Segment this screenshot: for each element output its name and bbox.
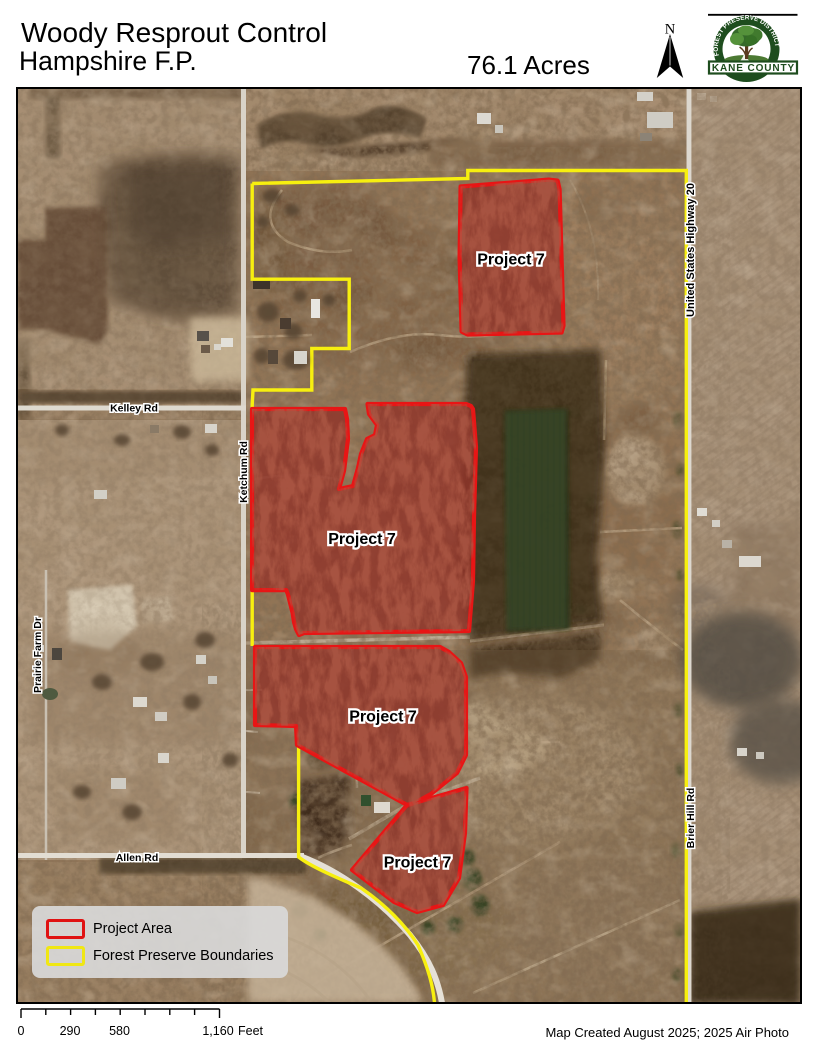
svg-text:Kelley Rd: Kelley Rd — [110, 403, 158, 415]
svg-text:580: 580 — [109, 1024, 130, 1038]
svg-text:0: 0 — [18, 1024, 25, 1038]
svg-text:Brier Hill Rd: Brier Hill Rd — [685, 788, 697, 849]
svg-text:Project 7: Project 7 — [349, 709, 417, 726]
svg-text:1,160: 1,160 — [202, 1024, 233, 1038]
svg-text:Prairie Farm Dr: Prairie Farm Dr — [32, 617, 44, 693]
svg-text:Allen Rd: Allen Rd — [116, 852, 159, 864]
svg-text:290: 290 — [60, 1024, 81, 1038]
svg-text:United States Highway 20: United States Highway 20 — [685, 183, 697, 317]
svg-text:KANE COUNTY: KANE COUNTY — [712, 63, 795, 74]
svg-text:Feet: Feet — [238, 1024, 264, 1038]
svg-text:Ketchum Rd: Ketchum Rd — [238, 441, 250, 503]
svg-text:Project 7: Project 7 — [384, 855, 452, 872]
svg-text:Project 7: Project 7 — [477, 252, 545, 269]
svg-text:Project 7: Project 7 — [328, 531, 396, 548]
